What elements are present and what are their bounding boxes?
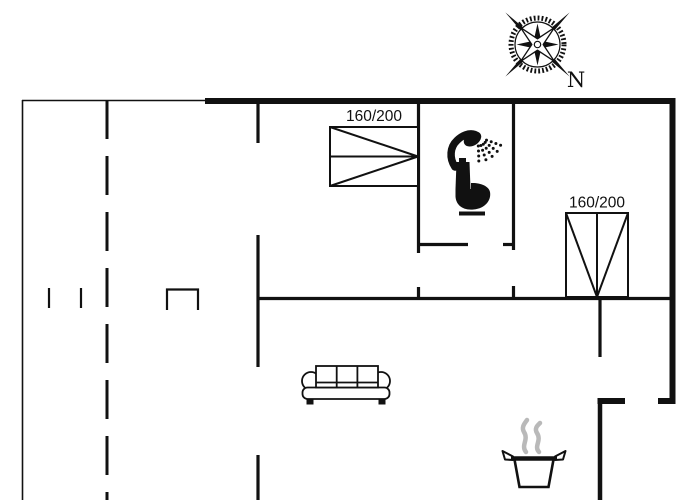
north-label: N [567, 68, 585, 92]
sofa-icon [302, 366, 390, 405]
terrace-step [167, 290, 198, 311]
floorplan-drawing: 160/200 160/200 [0, 0, 700, 500]
compass-rose-icon [503, 10, 572, 79]
shower-spray-dots [477, 139, 502, 163]
bed-size-label-right: 160/200 [569, 195, 625, 212]
steam-icon [523, 420, 540, 452]
cooking-pot-icon [503, 420, 566, 487]
floorplan-canvas: 160/200 160/200 [0, 0, 700, 500]
shower-icon [451, 128, 502, 167]
terrace-marks [49, 288, 198, 310]
double-bed-top-icon [330, 127, 418, 186]
double-bed-right-icon [566, 213, 628, 297]
toilet-icon [456, 158, 491, 216]
bed-size-label-top: 160/200 [346, 108, 402, 125]
